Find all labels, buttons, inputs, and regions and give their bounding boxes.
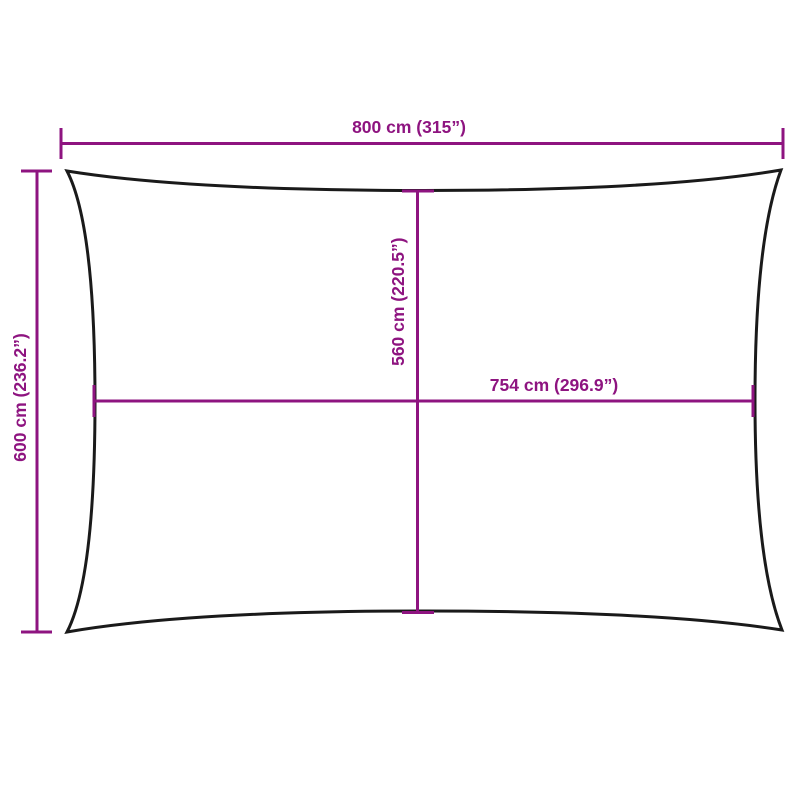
svg-text:754 cm (296.9”): 754 cm (296.9”) [490, 375, 618, 395]
svg-text:800 cm (315”): 800 cm (315”) [352, 117, 466, 137]
svg-text:600 cm (236.2”): 600 cm (236.2”) [10, 333, 30, 461]
svg-text:560 cm (220.5”): 560 cm (220.5”) [388, 237, 408, 365]
